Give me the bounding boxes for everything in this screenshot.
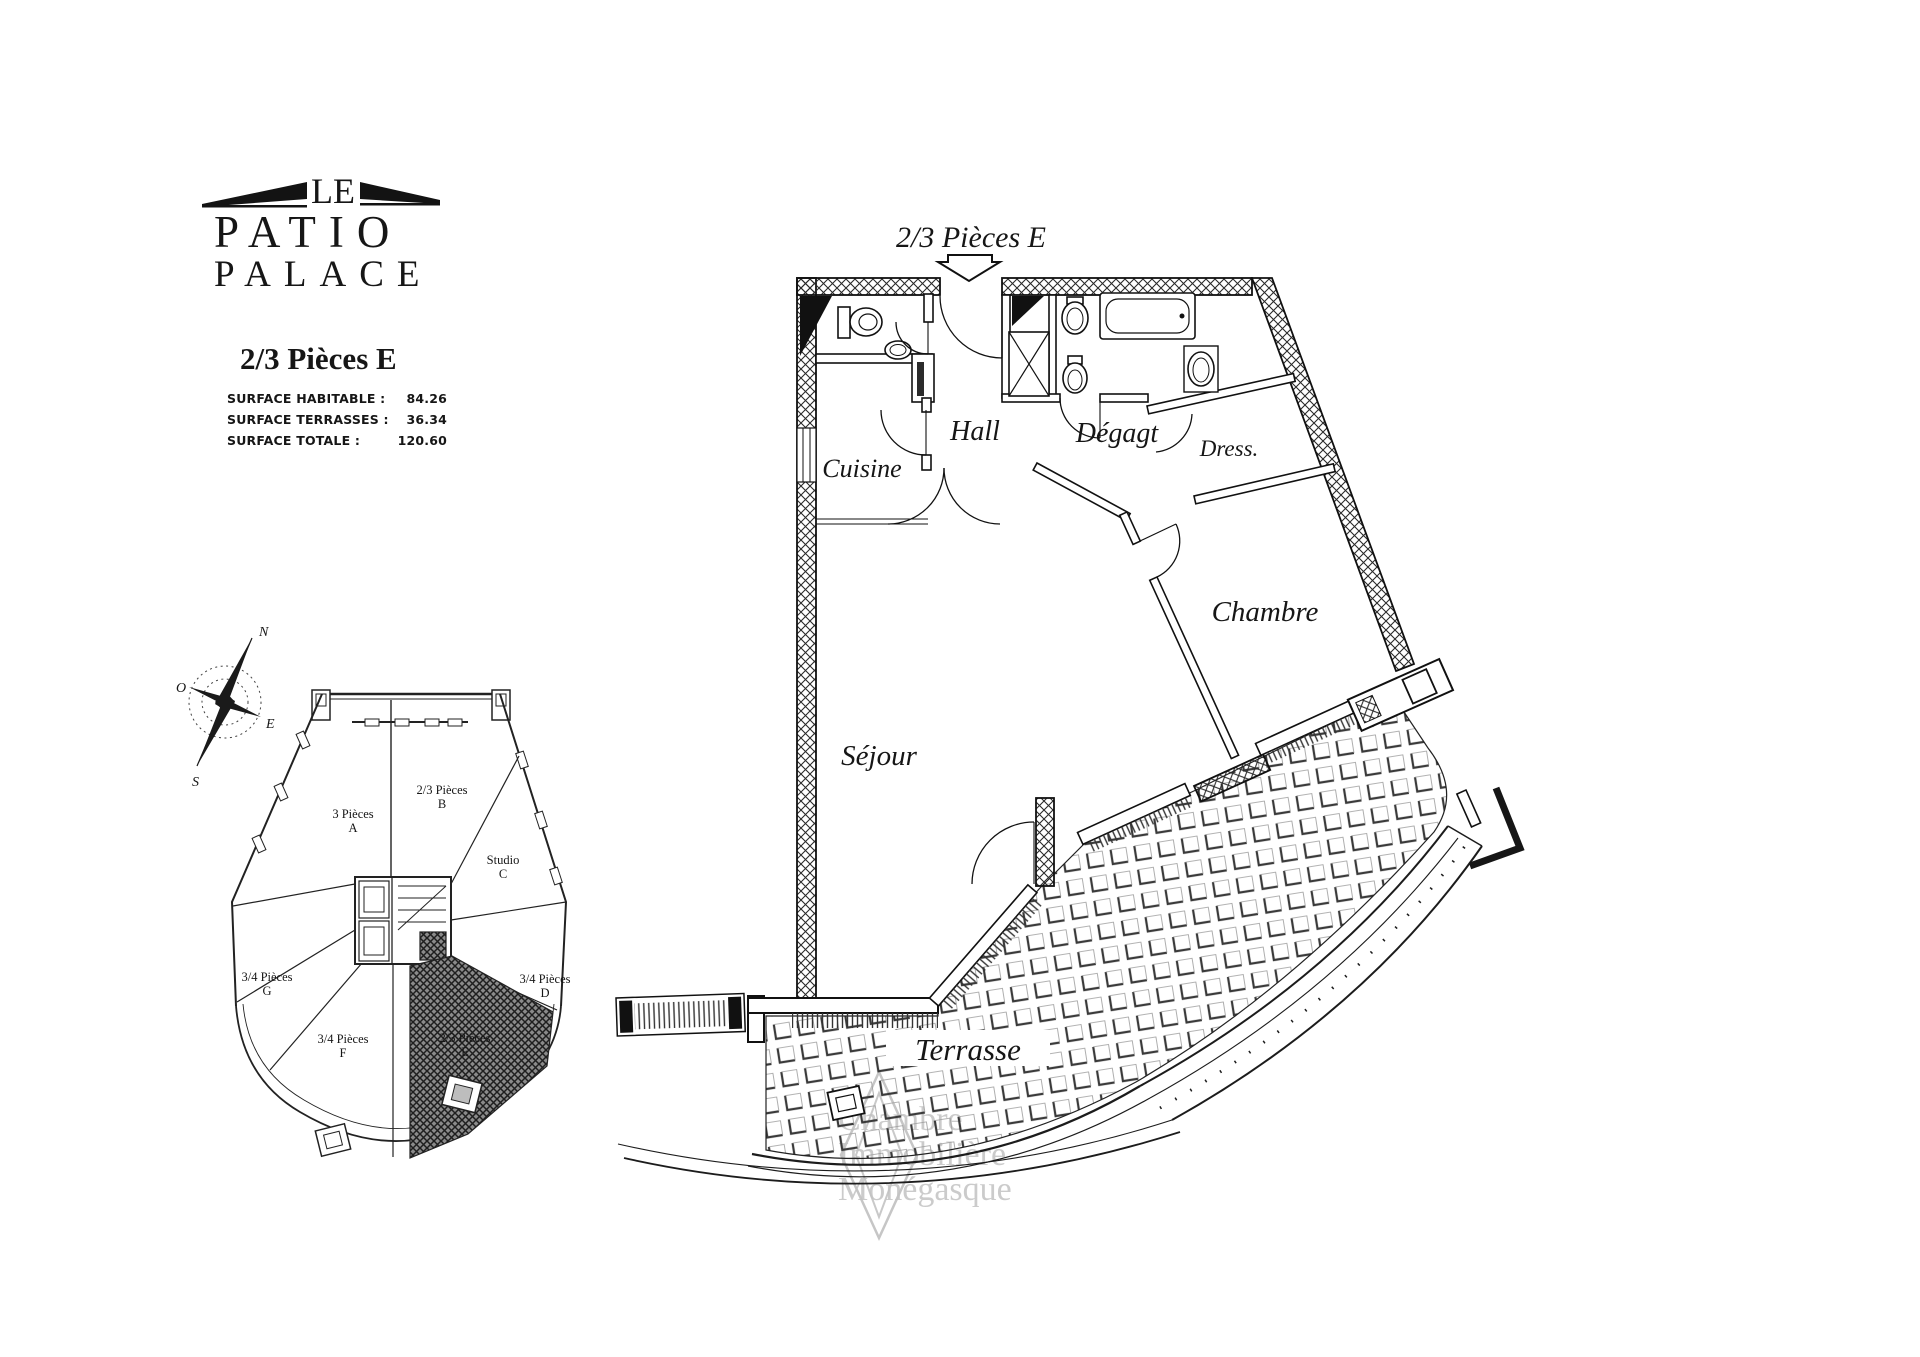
compass-north-label: N (258, 625, 269, 640)
washbasin2-icon (1188, 352, 1214, 386)
surface-row-totale: SURFACE TOTALE : 120.60 (227, 430, 447, 451)
overview-label-c-name: Studio (487, 853, 520, 867)
entrance-arrow-icon (938, 255, 1000, 281)
overview-label-f-letter: F (340, 1046, 347, 1060)
overview-label-g-name: 3/4 Pièces (241, 970, 292, 984)
toilet-tank-icon (838, 307, 850, 338)
wc-fixtures (838, 307, 911, 359)
surface-value: 120.60 (398, 430, 447, 451)
surface-row-terrasses: SURFACE TERRASSES : 36.34 (227, 409, 447, 430)
room-label-dress: Dress. (1199, 436, 1259, 461)
surface-table: SURFACE HABITABLE : 84.26 SURFACE TERRAS… (227, 388, 447, 451)
room-label-sejour: Séjour (841, 740, 917, 772)
window-fringe (792, 1013, 938, 1028)
logo-le: LE (311, 171, 355, 211)
room-label-degagt: Dégagt (1075, 418, 1160, 449)
room-label-chambre: Chambre (1212, 596, 1319, 628)
surface-label: SURFACE TOTALE : (227, 430, 360, 451)
overview-core (355, 877, 451, 964)
surface-label: SURFACE TERRASSES : (227, 409, 389, 430)
main-apartment-plan: 2/3 Pièces E (600, 150, 1600, 1300)
overview-label-e-name: 2/3 Pièces (439, 1031, 490, 1045)
duct-triangle-bath (1012, 296, 1044, 326)
overview-unit-e-highlight (410, 956, 553, 1158)
room-label-cuisine: Cuisine (822, 454, 901, 483)
kitchen-window (797, 428, 816, 482)
overview-planter-box (315, 1124, 350, 1156)
bathroom-fixtures (1009, 293, 1218, 396)
overview-label-d-name: 3/4 Pièces (519, 972, 570, 986)
compass-east-label: E (265, 717, 275, 732)
compass-rose: N S O E (176, 625, 275, 790)
terrace-drain-box (827, 1086, 864, 1120)
room-label-terrasse: Terrasse (915, 1032, 1021, 1067)
bidet-icon (1063, 363, 1087, 393)
surface-value: 84.26 (406, 388, 447, 409)
sink-icon (1062, 302, 1088, 334)
plan-title: 2/3 Pièces E (896, 221, 1046, 254)
compass-west-label: O (176, 681, 186, 696)
terrace-end-sill (1457, 790, 1481, 827)
washbasin-icon (885, 341, 911, 359)
room-label-hall: Hall (949, 416, 1000, 447)
patio-palace-logo: LE (200, 146, 444, 212)
compass-south-label: S (192, 775, 199, 790)
terrace-end-wall (1470, 788, 1520, 866)
overview-label-d-letter: D (540, 986, 549, 1000)
overview-label-b-letter: B (438, 797, 446, 811)
surface-value: 36.34 (406, 409, 447, 430)
unit-title: 2/3 Pièces E (240, 341, 397, 377)
overview-label-g-letter: G (262, 984, 271, 998)
logo-palace: PALACE (214, 253, 433, 296)
surface-row-habitable: SURFACE HABITABLE : 84.26 (227, 388, 447, 409)
facade-pillar (1036, 798, 1054, 886)
overview-label-a-letter: A (348, 821, 357, 835)
overview-label-f-name: 3/4 Pièces (317, 1032, 368, 1046)
surface-label: SURFACE HABITABLE : (227, 388, 385, 409)
floorplan-page: { "branding": {"le": "LE", "patio": "PAT… (0, 0, 1920, 1357)
overview-label-c-letter: C (499, 867, 507, 881)
overview-key-plan: N S O E (170, 555, 590, 1195)
logo-patio: PATIO (214, 206, 402, 258)
logo-left-roof-icon (202, 182, 307, 207)
overview-label-a-name: 3 Pièces (332, 807, 373, 821)
logo-right-roof-icon (360, 182, 440, 204)
overview-label-e-letter: E (461, 1045, 469, 1059)
overview-label-b-name: 2/3 Pièces (416, 783, 467, 797)
louver-band (616, 994, 745, 1036)
